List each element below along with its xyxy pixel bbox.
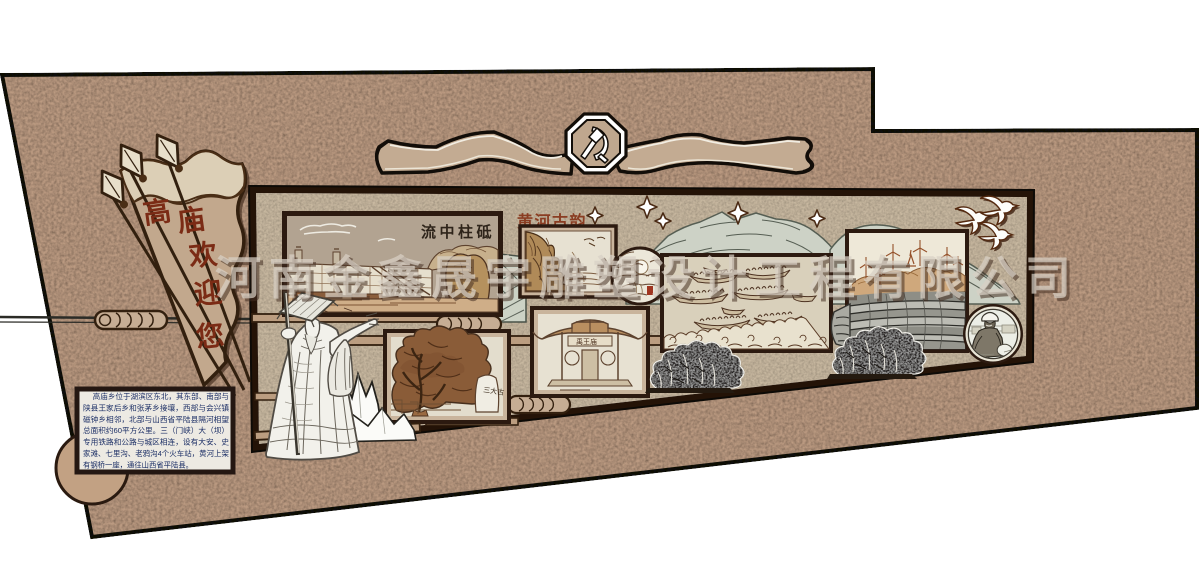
svg-text:高: 高 <box>141 195 173 230</box>
svg-text:有钢桥一座，通往山西省平陆县。: 有钢桥一座，通往山西省平陆县。 <box>83 459 193 469</box>
svg-text:陕县王家后乡和张茅乡接壤，西部与会兴镇: 陕县王家后乡和张茅乡接壤，西部与会兴镇 <box>83 402 229 412</box>
svg-text:您: 您 <box>194 319 225 354</box>
svg-text:高庙乡位于湖滨区东北，其东部、南部与: 高庙乡位于湖滨区东北，其东部、南部与 <box>83 391 229 401</box>
svg-text:禹王庙: 禹王庙 <box>576 337 597 346</box>
svg-text:总面积约60平方公里。三（门峡）大（坝）: 总面积约60平方公里。三（门峡）大（坝） <box>83 425 229 435</box>
svg-text:专用铁路和公路与城区相连，设有大安、史: 专用铁路和公路与城区相连，设有大安、史 <box>83 437 229 447</box>
svg-text:流中柱砥: 流中柱砥 <box>421 223 495 241</box>
svg-text:磁钟乡相邻，北部与山西省平陆县隔河相望: 磁钟乡相邻，北部与山西省平陆县隔河相望 <box>83 414 229 424</box>
svg-text:庙: 庙 <box>175 202 207 238</box>
svg-text:河南金鑫晟宇雕塑设计工程有限公司: 河南金鑫晟宇雕塑设计工程有限公司 <box>215 252 1079 304</box>
svg-text:家滩、七里沟、老鸦沟4个火车站，黄河上架: 家滩、七里沟、老鸦沟4个火车站，黄河上架 <box>83 448 229 458</box>
